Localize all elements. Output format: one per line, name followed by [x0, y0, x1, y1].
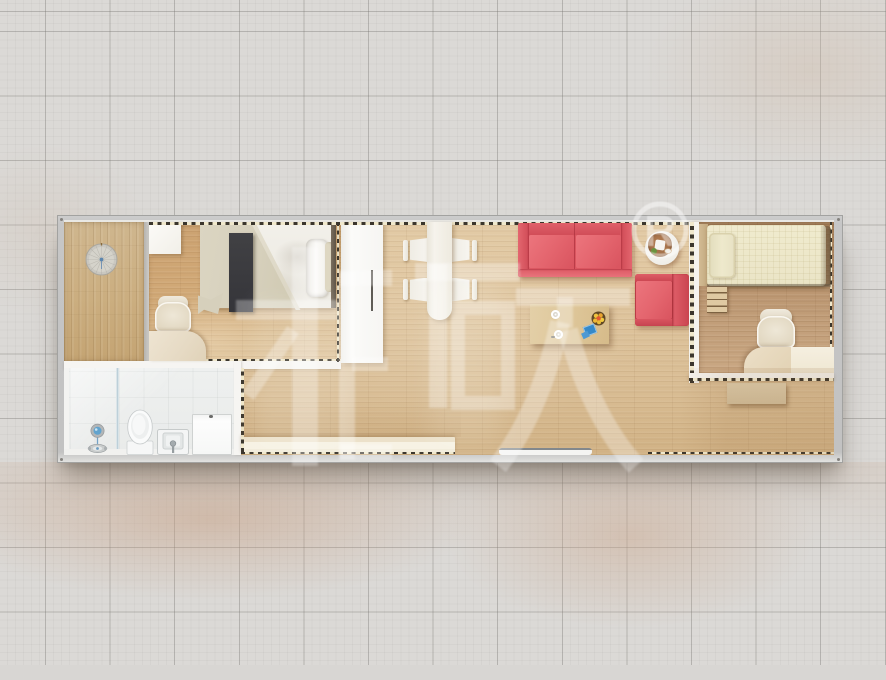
svg-text:R: R [644, 207, 676, 256]
